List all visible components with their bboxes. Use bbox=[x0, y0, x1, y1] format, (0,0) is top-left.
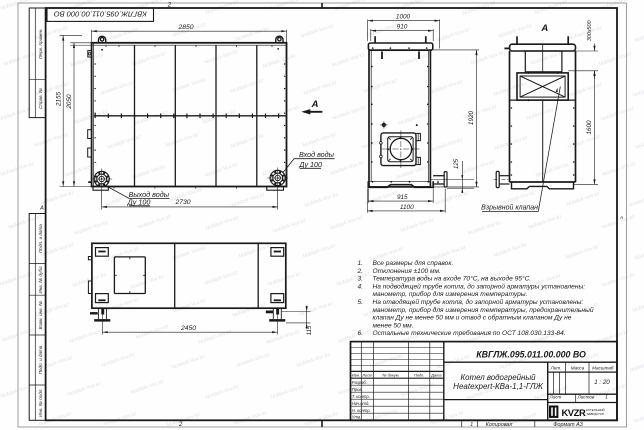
svg-text:1100: 1100 bbox=[400, 204, 414, 211]
svg-text:2.: 2. bbox=[357, 268, 364, 275]
svg-text:А: А bbox=[619, 215, 623, 220]
svg-text:Нач.отд.: Нач.отд. bbox=[352, 401, 370, 406]
svg-text:Котел водогрейный: Котел водогрейный bbox=[460, 373, 536, 382]
svg-text:915: 915 bbox=[397, 194, 408, 201]
svg-text:1: 1 bbox=[605, 395, 608, 401]
svg-text:Все размеры для справок.: Все размеры для справок. bbox=[373, 259, 454, 267]
svg-text:115: 115 bbox=[307, 325, 313, 335]
svg-text:1: 1 bbox=[470, 422, 473, 428]
svg-text:Масштаб: Масштаб bbox=[592, 366, 614, 371]
svg-text:Формат А3: Формат А3 bbox=[553, 422, 583, 428]
svg-text:Лит.: Лит. bbox=[550, 366, 562, 371]
svg-text:Дата: Дата bbox=[430, 373, 442, 378]
svg-text:Лист: Лист bbox=[549, 395, 562, 400]
svg-text:Отклонения ±100 мм.: Отклонения ±100 мм. bbox=[373, 268, 442, 275]
svg-text:Лист: Лист bbox=[361, 373, 373, 378]
svg-text:Копировал: Копировал bbox=[486, 422, 513, 428]
svg-text:Вход воды: Вход воды bbox=[299, 150, 335, 159]
svg-text:6.: 6. bbox=[358, 330, 364, 337]
svg-text:1 : 20: 1 : 20 bbox=[594, 379, 610, 386]
svg-text:Взам. инв. №: Взам. инв. № bbox=[38, 301, 43, 329]
svg-text:ЗАВОД РЭП: ЗАВОД РЭП bbox=[587, 412, 604, 416]
svg-text:Подп.: Подп. bbox=[414, 373, 424, 378]
svg-text:1.: 1. bbox=[358, 260, 364, 267]
svg-text:манометр, прибор для измерения: манометр, прибор для измерения температу… bbox=[373, 290, 528, 298]
svg-text:1600: 1600 bbox=[586, 120, 593, 135]
svg-text:2730: 2730 bbox=[174, 199, 190, 206]
svg-text:Ду 100: Ду 100 bbox=[127, 197, 151, 206]
svg-text:Изм.: Изм. bbox=[352, 373, 360, 378]
svg-text:менее 50 мм.: менее 50 мм. bbox=[373, 322, 414, 329]
svg-text:2: 2 bbox=[178, 422, 183, 428]
svg-text:Инв. № дубл.: Инв. № дубл. bbox=[38, 265, 43, 293]
svg-text:А: А bbox=[311, 99, 319, 110]
svg-text:2850: 2850 bbox=[177, 24, 193, 31]
svg-text:На подводящей трубе котла, до: На подводящей трубе котла, до запорной а… bbox=[373, 282, 586, 290]
svg-text:1000: 1000 bbox=[396, 13, 411, 20]
svg-text:КВГЛЖ.095.011.00.000 ВО: КВГЛЖ.095.011.00.000 ВО bbox=[54, 10, 147, 19]
svg-text:5.: 5. bbox=[358, 299, 364, 306]
svg-text:2: 2 bbox=[167, 3, 172, 9]
svg-text:Ду 100: Ду 100 bbox=[298, 160, 322, 169]
svg-text:Heatexpert-КВа-1,1-ГЛЖ: Heatexpert-КВа-1,1-ГЛЖ bbox=[453, 382, 543, 391]
svg-text:Масса: Масса bbox=[571, 366, 585, 371]
svg-text:Подп. и дата: Подп. и дата bbox=[38, 345, 43, 374]
svg-text:Листов: Листов bbox=[577, 395, 595, 400]
svg-text:Взрывной клапан: Взрывной клапан bbox=[481, 203, 538, 211]
svg-text:Н. контр.: Н. контр. bbox=[352, 408, 371, 413]
svg-text:KVZR: KVZR bbox=[561, 407, 586, 418]
svg-text:Пров.: Пров. bbox=[352, 387, 363, 392]
svg-text:3.: 3. bbox=[358, 276, 364, 283]
svg-text:Перв. примен.: Перв. примен. bbox=[38, 28, 43, 59]
svg-text:Утв.: Утв. bbox=[352, 415, 362, 420]
svg-text:Т. контр.: Т. контр. bbox=[352, 394, 370, 399]
svg-text:А: А bbox=[39, 206, 44, 212]
svg-text:910: 910 bbox=[397, 23, 408, 30]
svg-text:Остальные технические требован: Остальные технические требования по ОСТ … bbox=[373, 329, 566, 337]
svg-text:Подп. и дата: Подп. и дата bbox=[38, 224, 43, 253]
svg-text:2155: 2155 bbox=[55, 91, 62, 107]
svg-text:2450: 2450 bbox=[180, 325, 196, 332]
svg-text:Инв. № подл.: Инв. № подл. bbox=[38, 388, 43, 417]
svg-text:125: 125 bbox=[454, 158, 460, 169]
svg-text:На отводящей трубе котла, до з: На отводящей трубе котла, до запорной ар… bbox=[373, 298, 584, 306]
svg-text:300х500: 300х500 bbox=[587, 20, 593, 41]
svg-text:манометр, прибор для измерения: манометр, прибор для измерения температу… bbox=[373, 306, 594, 314]
svg-text:клапан Ду не менее 50 мм и отв: клапан Ду не менее 50 мм и отвод с обрат… bbox=[373, 314, 572, 322]
svg-text:1920: 1920 bbox=[468, 110, 475, 125]
svg-text:4.: 4. bbox=[358, 283, 364, 290]
svg-text:Справ. №: Справ. № bbox=[38, 88, 43, 109]
svg-text:Температура воды на входе 70°С: Температура воды на входе 70°С, на выход… bbox=[373, 275, 532, 283]
svg-text:№ докум.: № докум. bbox=[382, 373, 399, 378]
svg-text:А: А bbox=[540, 23, 548, 34]
svg-text:КВГЛЖ.095.011.00.000 ВО: КВГЛЖ.095.011.00.000 ВО bbox=[476, 350, 586, 360]
svg-text:2050: 2050 bbox=[66, 94, 73, 110]
svg-text:Разраб.: Разраб. bbox=[352, 380, 367, 385]
